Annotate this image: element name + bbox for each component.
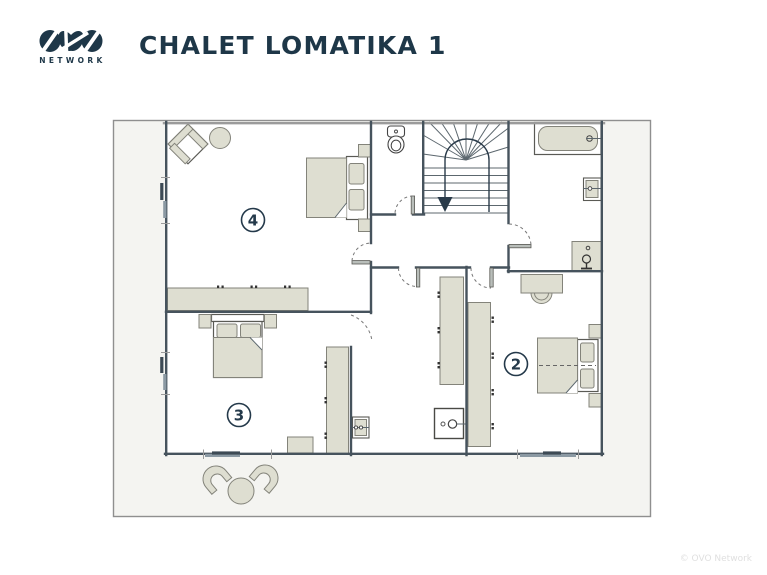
nightstand-icon [359,219,372,232]
nightstand-icon [359,145,372,158]
svg-text:4: 4 [248,212,258,230]
nightstand-icon [589,325,602,339]
towel-radiator-icon [584,178,602,201]
terrace-table-icon [228,478,254,504]
radiator-panel-icon [351,417,369,438]
floorplan: 4 3 2 [0,0,767,575]
svg-text:2: 2 [511,356,521,374]
room-label-bedroom3: 3 [228,404,251,427]
utility-washbasin-icon [435,409,467,439]
toilet-icon [388,126,405,153]
bathroom-sink-icon [572,242,603,272]
room-label-bedroom2: 2 [505,353,528,376]
sideboard-counter-icon [168,286,309,311]
wardrobe-icon [325,347,349,454]
bathtub-icon [535,123,602,155]
bench-radiator-icon [288,437,314,453]
svg-text:3: 3 [234,407,244,425]
nightstand-icon [265,315,277,329]
side-table-icon [210,128,231,149]
room-label-bedroom4: 4 [242,209,265,232]
wardrobe-icon [468,303,494,447]
copyright-text: © OVO Network [680,554,752,564]
nightstand-icon [589,394,602,408]
nightstand-icon [199,315,211,329]
page: NETWORK CHALET LOMATIKA 1 [0,0,767,575]
wardrobe-icon [438,277,464,385]
